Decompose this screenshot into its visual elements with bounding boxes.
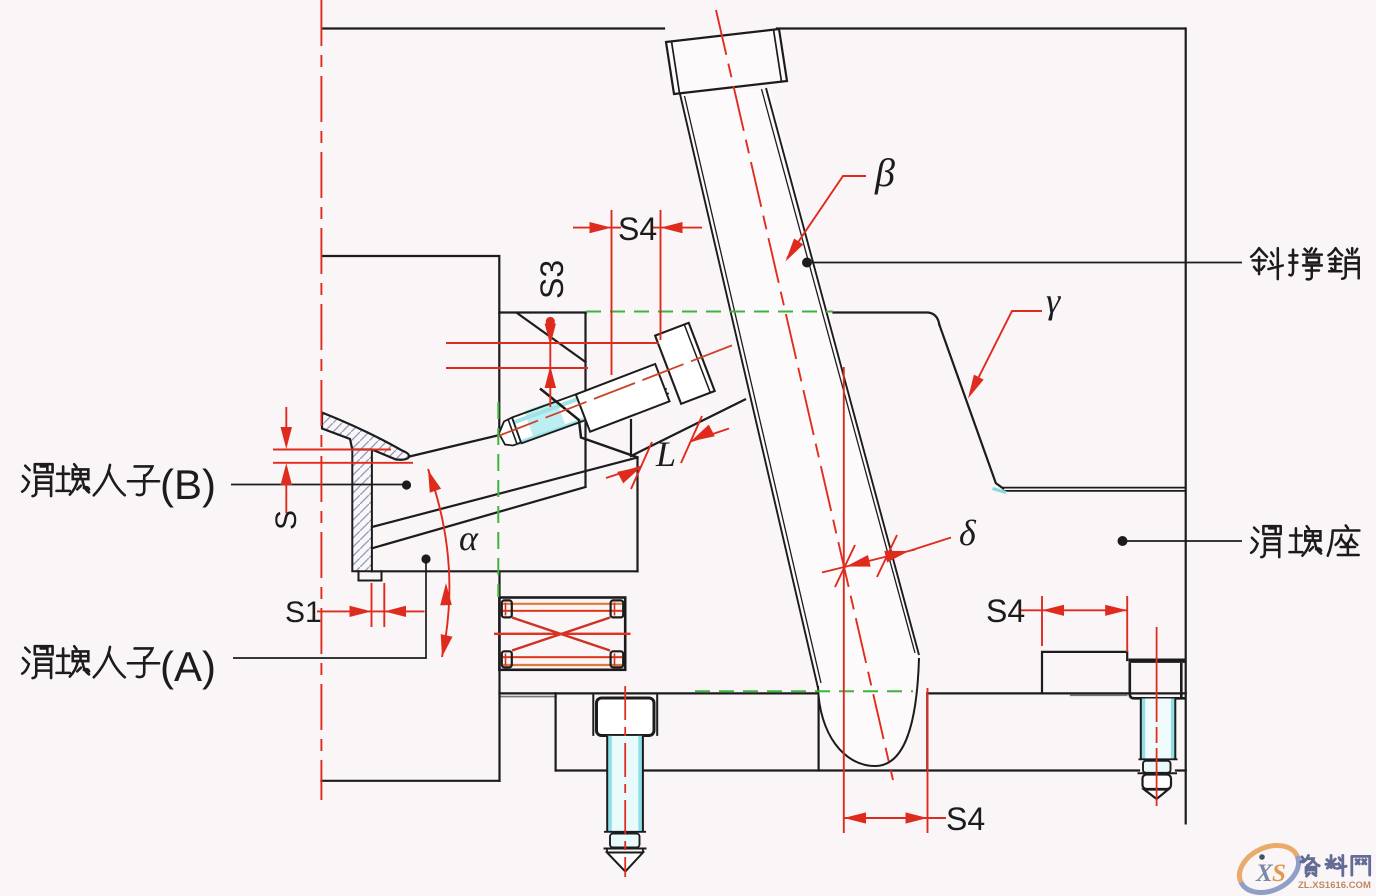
- svg-text:S4: S4: [946, 801, 985, 837]
- svg-text:δ: δ: [959, 513, 977, 553]
- svg-text:(A): (A): [160, 643, 216, 690]
- svg-text:(B): (B): [160, 461, 216, 508]
- svg-text:α: α: [459, 518, 479, 558]
- svg-text:S1: S1: [285, 596, 322, 629]
- svg-text:S4: S4: [618, 211, 657, 247]
- svg-text:S4: S4: [986, 593, 1025, 629]
- svg-text:S: S: [270, 510, 303, 530]
- svg-text:S3: S3: [534, 260, 570, 299]
- svg-text:ZL.XS1616.COM: ZL.XS1616.COM: [1298, 880, 1371, 891]
- svg-text:β: β: [874, 150, 895, 195]
- svg-text:L: L: [655, 434, 676, 474]
- svg-text:γ: γ: [1046, 281, 1061, 321]
- svg-text:S: S: [1272, 860, 1286, 887]
